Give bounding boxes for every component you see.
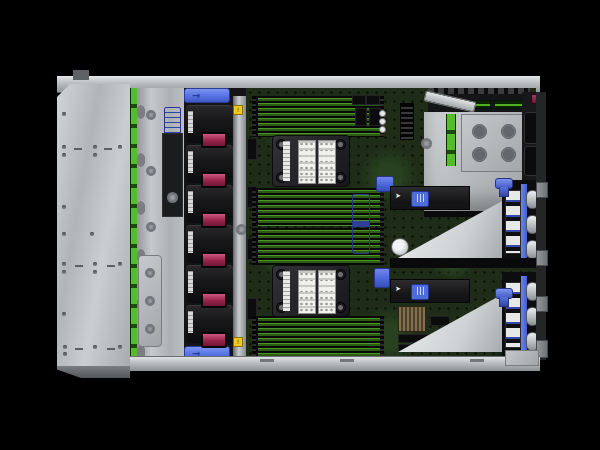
screw-hole — [93, 145, 97, 149]
rail-notch — [470, 359, 484, 362]
bracket-hole — [145, 268, 155, 278]
heatsink-instruction-label — [298, 140, 316, 184]
warning-triangle-icon: ! — [233, 337, 243, 347]
screw-hole — [63, 345, 67, 349]
chassis-top-tab — [73, 70, 89, 80]
channel-hole — [146, 166, 156, 176]
screw-hole — [63, 352, 67, 356]
bracket-hole — [145, 324, 155, 334]
riser1-blue-t-latch — [495, 178, 513, 196]
tray-slot — [107, 265, 115, 267]
bracket-hole — [145, 296, 155, 306]
rail-notch — [340, 359, 354, 362]
warning-triangle-icon: ! — [233, 105, 243, 115]
riser2-blue-t-latch — [495, 288, 513, 306]
fan-module — [186, 105, 233, 143]
riser1-shadow — [390, 258, 536, 268]
dimm-clips — [380, 228, 384, 265]
standoff — [379, 118, 386, 125]
blue-retention-bracket — [352, 194, 370, 254]
plate-hole — [472, 147, 487, 162]
fan-module — [186, 305, 233, 343]
screw-hole — [62, 205, 66, 209]
screw-hole — [93, 270, 97, 274]
cpu2-heatsink — [272, 265, 350, 317]
chipset-heatsink — [398, 306, 426, 332]
blue-cable-clip — [374, 268, 390, 288]
heatsink-screw — [335, 269, 346, 280]
tray-slot — [75, 348, 83, 350]
vrm-heatsink — [400, 103, 414, 140]
tray-slot — [75, 265, 83, 267]
arrow-right-icon: → — [192, 91, 200, 101]
guide-thumbscrew — [167, 192, 178, 203]
plate-hole — [501, 147, 516, 162]
power-connector — [355, 108, 367, 126]
pcie-slot — [494, 100, 524, 109]
channel-hole — [146, 222, 156, 232]
drive-cage-plate — [461, 114, 526, 172]
backplane-blue-latch — [164, 107, 181, 136]
server-product-photo: ! ! → → — [0, 0, 600, 450]
screw-hole — [118, 345, 122, 349]
riser1-front-bar: ➤ — [390, 186, 470, 210]
heatsink-label-strip — [283, 271, 290, 311]
fan-module — [186, 265, 233, 303]
cable-guide-bar — [162, 133, 183, 217]
board-connector — [247, 138, 257, 160]
screw-hole — [93, 153, 97, 157]
rail-notch — [260, 359, 274, 362]
cmos-battery — [391, 238, 409, 256]
tray-slot — [74, 148, 82, 150]
rear-bracket — [536, 250, 548, 266]
screw-hole — [62, 262, 66, 266]
dimm-clips — [380, 188, 384, 226]
fan-module — [186, 185, 233, 223]
heatsink-instruction-label — [298, 270, 316, 314]
standoff — [379, 126, 386, 133]
riser2-release-button — [411, 284, 429, 300]
power-connector — [352, 95, 366, 105]
dimm-bank-4 — [256, 316, 384, 356]
screw-hole — [62, 153, 66, 157]
tray-slot — [104, 148, 112, 150]
tray-slot — [107, 348, 115, 350]
fan-bank — [186, 104, 233, 344]
riser2-card-column — [502, 272, 536, 356]
fan-module — [186, 225, 233, 263]
screw-hole — [118, 145, 122, 149]
pointer-icon: ➤ — [395, 286, 401, 293]
dimm-clips — [380, 316, 384, 356]
chassis-rear-wall — [536, 92, 546, 360]
screw-hole — [62, 232, 66, 236]
riser2-bottom-bracket — [505, 350, 539, 366]
screw-hole — [62, 112, 66, 116]
channel-hole — [146, 110, 156, 120]
rear-bracket — [536, 182, 548, 198]
riser-guide-green-strip — [446, 114, 456, 166]
fan-cage-handle-top: → — [184, 88, 230, 103]
plate-hole — [472, 124, 487, 139]
riser1-release-button — [411, 191, 429, 207]
heatsink-screw — [335, 302, 346, 313]
plate-hole — [501, 124, 516, 139]
tray-foot — [57, 366, 130, 378]
board-chip — [430, 316, 450, 326]
cpu1-heatsink — [272, 135, 350, 187]
heatsink-screw — [335, 172, 346, 183]
pointer-icon: ➤ — [395, 193, 401, 200]
drive-bay-tray — [57, 84, 130, 368]
fan-module — [186, 145, 233, 183]
floor-screw — [421, 138, 432, 149]
riser2-front-bar: ➤ — [390, 279, 470, 303]
rear-bracket — [536, 296, 548, 312]
screw-hole — [62, 270, 66, 274]
riser1-labels — [505, 190, 521, 254]
screw-hole — [93, 345, 97, 349]
heatsink-instruction-label — [318, 140, 336, 184]
heatsink-instruction-label — [318, 270, 336, 314]
screw-hole — [90, 232, 94, 236]
heatsink-label-strip — [283, 141, 290, 181]
screw-hole — [93, 262, 97, 266]
screw-hole — [62, 145, 66, 149]
power-connector — [366, 95, 380, 105]
heatsink-screw — [335, 139, 346, 150]
screw-hole — [62, 312, 66, 316]
standoff — [379, 110, 386, 117]
screw-hole — [118, 262, 122, 266]
